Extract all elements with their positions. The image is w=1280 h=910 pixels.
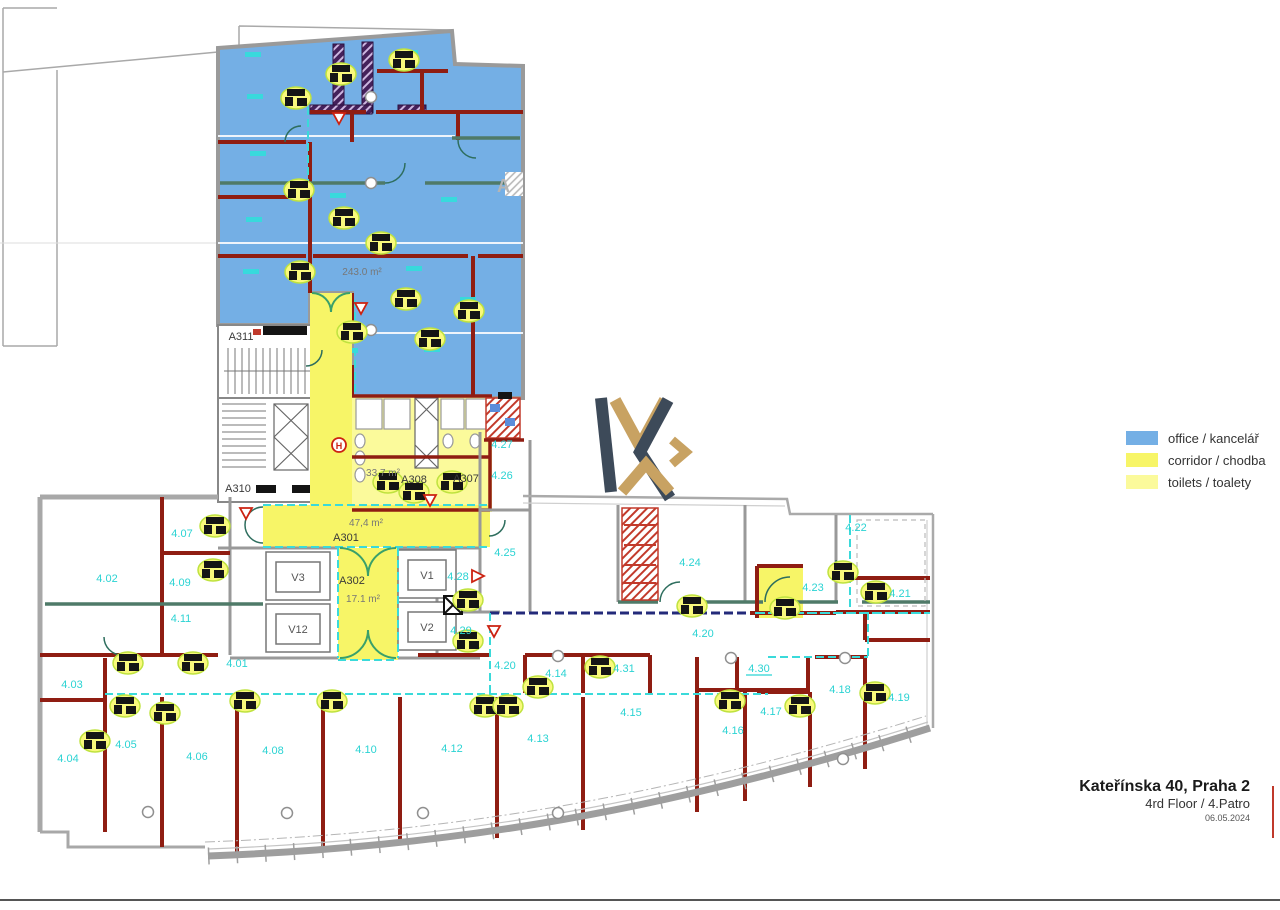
room-label-4-27: 4.27 xyxy=(491,439,512,451)
riser-424 xyxy=(622,508,658,600)
room-label-4-18: 4.18 xyxy=(829,684,850,696)
legend: office / kancelář corridor / chodba toil… xyxy=(1126,431,1266,490)
room-label-4-28: 4.28 xyxy=(447,571,468,583)
area-label-lift-corridor: 17.1 m² xyxy=(346,594,381,605)
floor-plan-drawing: A xyxy=(0,0,1280,905)
floor-label: 4rd Floor / 4.Patro xyxy=(1145,796,1250,811)
room-label-4-12: 4.12 xyxy=(441,743,462,755)
room-label-4-01: 4.01 xyxy=(226,658,247,670)
core-label-a307: A307 xyxy=(453,473,479,485)
area-label-office: 243.0 m² xyxy=(342,267,382,278)
room-label-4-06: 4.06 xyxy=(186,751,207,763)
room-label-4-17: 4.17 xyxy=(760,706,781,718)
room-label-4-02: 4.02 xyxy=(96,573,117,585)
room-label-4-10: 4.10 xyxy=(355,744,376,756)
room-label-4-26: 4.26 xyxy=(491,470,512,482)
core-label-a310: A310 xyxy=(225,483,251,495)
page-title: Kateřínska 40, Praha 2 xyxy=(1079,778,1250,795)
room-label-4-11: 4.11 xyxy=(171,613,192,625)
watermark-letter: A xyxy=(497,176,510,196)
room-label-4-08: 4.08 xyxy=(262,745,283,757)
legend-label-office: office / kancelář xyxy=(1168,431,1259,446)
room-label-4-09: 4.09 xyxy=(169,577,190,589)
lift-label-v2: V2 xyxy=(420,622,433,634)
room-label-4-29: 4.29 xyxy=(450,625,471,637)
room-label-4-19: 4.19 xyxy=(888,692,909,704)
room-label-4-07: 4.07 xyxy=(171,528,192,540)
riser-shaft xyxy=(486,392,520,438)
room-label-4-14: 4.14 xyxy=(545,668,566,680)
room-label-4-31: 4.31 xyxy=(613,663,634,675)
room-label-4-15: 4.15 xyxy=(620,707,641,719)
date-label: 06.05.2024 xyxy=(1205,813,1250,823)
core-label-a301: A301 xyxy=(333,532,359,544)
room-label-4-13: 4.13 xyxy=(527,733,548,745)
area-label-toilets: 33,7 m² xyxy=(366,468,401,479)
area-label-corridor: 47,4 m² xyxy=(349,518,384,529)
core-label-a302: A302 xyxy=(339,575,365,587)
room-label-4-16: 4.16 xyxy=(722,725,743,737)
room-label-4-21: 4.21 xyxy=(889,588,910,600)
stair-core xyxy=(218,325,320,502)
legend-swatch-toilets xyxy=(1126,475,1158,489)
legend-swatch-corridor xyxy=(1126,453,1158,467)
legend-swatch-office xyxy=(1126,431,1158,445)
lift-label-v12: V12 xyxy=(288,624,308,636)
room-label-4-03: 4.03 xyxy=(61,679,82,691)
room-label-4-20: 4.20 xyxy=(494,660,515,672)
lift-label-v3: V3 xyxy=(291,572,304,584)
core-label-a308: A308 xyxy=(401,474,427,486)
room-label-4-22: 4.22 xyxy=(845,522,866,534)
room-label-4-25: 4.25 xyxy=(494,547,515,559)
room-label-4-20b: 4.20 xyxy=(692,628,713,640)
room-label-4-23: 4.23 xyxy=(802,582,823,594)
room-label-4-30: 4.30 xyxy=(748,663,769,675)
lift-label-v1: V1 xyxy=(420,570,433,582)
legend-label-corridor: corridor / chodba xyxy=(1168,453,1266,468)
room-label-4-24: 4.24 xyxy=(679,557,700,569)
room-label-4-05: 4.05 xyxy=(115,739,136,751)
hydrant-letter: H xyxy=(336,441,343,451)
legend-label-toilets: toilets / toalety xyxy=(1168,475,1252,490)
room-label-4-04: 4.04 xyxy=(57,753,78,765)
core-label-a311: A311 xyxy=(229,331,254,343)
